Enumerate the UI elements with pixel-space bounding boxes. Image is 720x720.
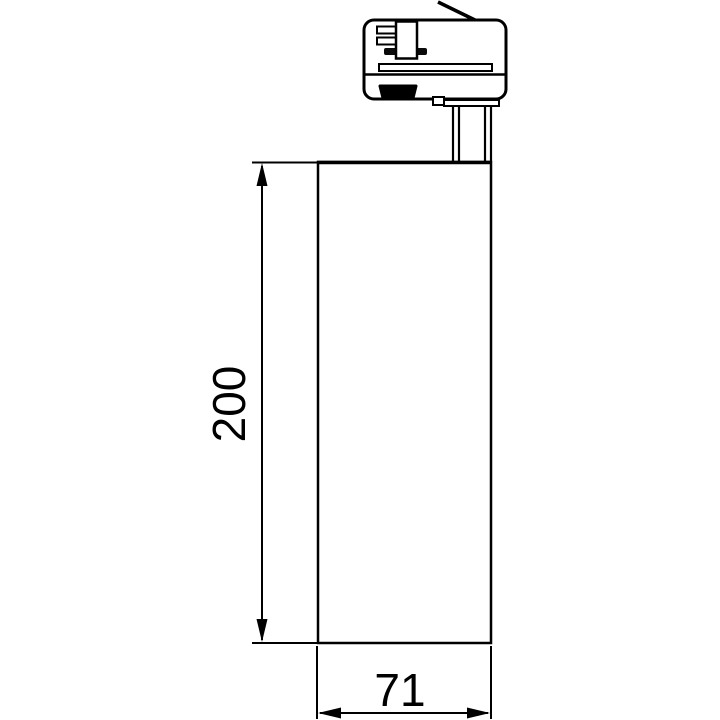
width-dimension-label: 71: [374, 664, 425, 716]
adapter-shelf: [379, 64, 492, 71]
height-dimension-label: 200: [203, 366, 255, 443]
cylinder-body: [318, 162, 491, 643]
technical-drawing-page: 200 71: [0, 0, 720, 720]
stem-notch: [433, 97, 444, 105]
contact-pin-bottom: [377, 38, 397, 45]
spotlight-dimension-drawing: 200 71: [0, 0, 720, 720]
stem-flange: [444, 100, 499, 106]
adapter-inner-block: [396, 22, 417, 59]
adapter-lock-lever: [380, 86, 416, 98]
contact-pin-top: [377, 27, 397, 34]
